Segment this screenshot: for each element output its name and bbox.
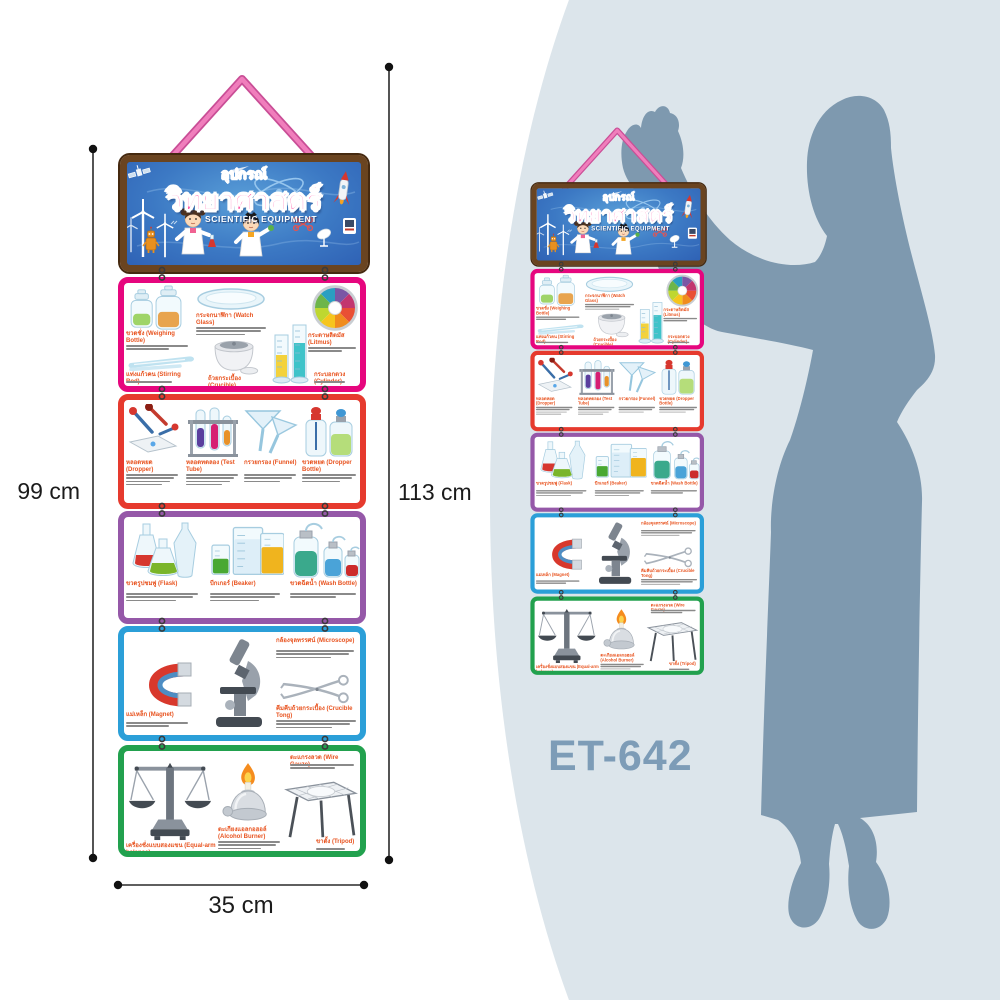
equal-arm-balance-art: [537, 604, 596, 664]
item-description: [308, 347, 356, 354]
chart-header-board: อุปกรณ์ วิทยาศาสตร์ SCIENTIFIC EQUIPMENT: [120, 155, 368, 272]
product-code: ET-642: [548, 732, 693, 781]
stirring-rod-art: [128, 355, 196, 371]
panel-3-flasks: ขวดรูปชมพู่ (Flask) บีกเกอร์ (Beaker): [118, 511, 366, 624]
item-description: [126, 852, 230, 855]
item-label: หลอดหยด (Dropper): [126, 460, 180, 473]
flask-art: [536, 440, 589, 481]
litmus-art: [666, 275, 698, 307]
magnet-art: [537, 536, 582, 572]
item-description: [126, 381, 192, 384]
item-description: [316, 848, 358, 851]
test-tube-art: [186, 404, 240, 460]
cylinder-art: [638, 301, 665, 344]
hook-icon: [320, 502, 330, 518]
flask-art: [126, 521, 202, 579]
item-label: บีกเกอร์ (Beaker): [595, 482, 647, 487]
panel-2-droppers: หลอดหยด (Dropper) หลอดทดลอง (Test Tube): [118, 394, 366, 509]
item-description: [536, 317, 579, 322]
crucible-art: [208, 339, 260, 375]
item-label: ตะเกียงแอลกอฮอล์ (Alcohol Burner): [218, 827, 284, 840]
hook-icon: [558, 507, 565, 518]
item-label: คีมคีบถ้วยกระเบื้อง (Crucible Tong): [276, 706, 360, 719]
item-description: [600, 664, 643, 671]
hook-icon: [320, 266, 330, 282]
item-description: [218, 841, 280, 851]
dimension-total-height: 113 cm: [398, 479, 472, 506]
hook-icon: [157, 617, 167, 633]
hook-icon: [320, 735, 330, 751]
item-label: ขวดชั่ง (Weighing Bottle): [536, 307, 581, 316]
equal-arm-balance-art: [128, 755, 212, 841]
crucible-art: [593, 312, 629, 337]
item-description: [659, 407, 697, 414]
item-label: ขวดรูปชมพู่ (Flask): [536, 482, 589, 487]
dropper-bottle-art: [302, 404, 356, 460]
funnel-art: [619, 358, 657, 396]
hook-icon: [558, 261, 565, 272]
item-description: [244, 474, 296, 484]
microscope-art: [593, 520, 636, 586]
stirring-rod-art: [537, 324, 585, 335]
item-label: กรวยกรอง (Funnel): [244, 460, 298, 467]
crucible-tong-art: [280, 674, 358, 704]
cylinder-art: [272, 323, 310, 385]
item-label: กล้องจุลทรรศน์ (Microscope): [276, 638, 358, 645]
chart-header-board: อุปกรณ์ วิทยาศาสตร์ SCIENTIFIC EQUIPMENT: [532, 184, 706, 266]
beaker-art: [595, 440, 647, 481]
hook-icon: [558, 345, 565, 356]
item-description: [669, 669, 698, 671]
item-label: ถ้วยกระเบื้อง (Crucible): [208, 376, 262, 389]
item-label: ขวดรูปชมพู่ (Flask): [126, 581, 202, 588]
dimension-board-height: 99 cm: [8, 478, 80, 505]
hook-icon: [672, 261, 679, 272]
panel-5-balance-heating: เครื่องชั่งแบบสองแขน (Equal-arm balance)…: [530, 597, 704, 675]
product-image: อุปกรณ์ วิทยาศาสตร์ SCIENTIFIC EQUIPMENT…: [0, 0, 1000, 1000]
hook-icon: [672, 590, 679, 601]
item-description: [314, 381, 358, 384]
item-label: คีมคีบถ้วยกระเบื้อง (Crucible Tong): [641, 569, 700, 578]
item-description: [126, 474, 178, 487]
microscope-art: [208, 636, 270, 730]
item-label: ถ้วยกระเบื้อง (Crucible): [593, 338, 631, 347]
chart-subtitle-en: SCIENTIFIC EQUIPMENT: [205, 214, 317, 224]
item-label: กระดาษลิตมัส (Litmus): [663, 308, 698, 317]
item-description: [619, 407, 655, 414]
item-label: บีกเกอร์ (Beaker): [210, 581, 284, 588]
item-description: [651, 610, 696, 615]
dimension-width: 35 cm: [181, 892, 301, 920]
item-description: [585, 304, 634, 311]
hook-icon: [320, 385, 330, 401]
item-description: [290, 593, 356, 600]
panel-4-magnet-microscope: แม่เหล็ก (Magnet) กล้องจุลทรรศน์ (Micros…: [530, 513, 704, 594]
panel-5-balance-heating: เครื่องชั่งแบบสองแขน (Equal-arm balance)…: [118, 745, 366, 857]
hook-icon: [558, 426, 565, 437]
hook-icon: [672, 507, 679, 518]
funnel-art: [244, 404, 298, 458]
chart-subtitle-en: SCIENTIFIC EQUIPMENT: [591, 225, 669, 232]
item-label: ตะเกียงแอลกอฮอล์ (Alcohol Burner): [600, 654, 646, 663]
item-label: หลอดทดลอง (Test Tube): [186, 460, 240, 473]
item-label: กระจกนาฬิกา (Watch Glass): [585, 294, 635, 303]
litmus-art: [312, 285, 358, 331]
weighing-bottle-art: [128, 285, 186, 331]
robot-icon: [548, 234, 559, 252]
panel-2-droppers: หลอดหยด (Dropper) หลอดทดลอง (Test Tube): [530, 351, 704, 432]
wash-bottle-art: [290, 521, 360, 579]
item-description: [290, 764, 354, 771]
item-label: ขวดชั่ง (Weighing Bottle): [126, 331, 190, 344]
hook-icon: [558, 590, 565, 601]
test-tube-art: [578, 358, 616, 397]
item-label: ขาตั้ง (Tripod): [669, 662, 700, 667]
magnet-art: [128, 658, 192, 710]
item-description: [196, 327, 266, 337]
dropper-bottle-art: [659, 358, 697, 397]
item-description: [663, 318, 697, 323]
item-label: หลอดทดลอง (Test Tube): [578, 397, 616, 406]
dropper-art: [536, 358, 574, 396]
robot-icon: [143, 227, 159, 253]
hook-icon: [157, 266, 167, 282]
item-label: กระดาษลิตมัส (Litmus): [308, 333, 358, 346]
item-description: [641, 530, 696, 537]
dropper-art: [126, 404, 180, 458]
hook-icon: [157, 385, 167, 401]
item-description: [578, 407, 614, 416]
wash-bottle-art: [651, 440, 700, 481]
item-description: [210, 593, 280, 603]
panel-4-magnet-microscope: แม่เหล็ก (Magnet) กล้องจุลทรรศน์ (Micros…: [118, 626, 366, 741]
item-label: ขาตั้ง (Tripod): [316, 839, 360, 846]
item-label: ขวดหยด (Dropper Bottle): [302, 460, 358, 473]
item-label: ขวดฉีดน้ำ (Wash Bottle): [290, 581, 360, 588]
item-description: [186, 474, 238, 487]
item-description: [276, 720, 356, 730]
item-label: แม่เหล็ก (Magnet): [126, 712, 190, 719]
item-label: หลอดหยด (Dropper): [536, 397, 574, 406]
item-label: กล้องจุลทรรศน์ (Microscope): [641, 522, 698, 527]
watch-glass-art: [585, 276, 634, 293]
panel-1-glassware: ขวดชั่ง (Weighing Bottle) กระจกนาฬิกา (W…: [530, 269, 704, 350]
hook-icon: [157, 502, 167, 518]
item-description: [536, 490, 586, 497]
tripod-wire-gauze-art: [645, 618, 700, 663]
item-description: [126, 345, 188, 352]
item-description: [651, 490, 697, 495]
item-label: ขวดฉีดน้ำ (Wash Bottle): [651, 482, 700, 487]
alcohol-burner-art: [603, 608, 639, 653]
item-description: [126, 722, 188, 729]
item-label: ขวดหยด (Dropper Bottle): [659, 397, 698, 406]
hook-icon: [672, 345, 679, 356]
hook-icon: [320, 617, 330, 633]
wall-chart-small: อุปกรณ์ วิทยาศาสตร์ SCIENTIFIC EQUIPMENT…: [529, 124, 705, 678]
hook-icon: [157, 735, 167, 751]
hook-icon: [672, 426, 679, 437]
item-description: [276, 650, 354, 660]
item-label: กรวยกรอง (Funnel): [619, 397, 657, 402]
panel-1-glassware: ขวดชั่ง (Weighing Bottle) กระจกนาฬิกา (W…: [118, 277, 366, 392]
wall-chart: อุปกรณ์ วิทยาศาสตร์ SCIENTIFIC EQUIPMENT…: [116, 70, 368, 862]
item-description: [536, 407, 572, 416]
alcohol-burner-art: [222, 761, 274, 825]
item-description: [536, 580, 579, 585]
item-description: [126, 593, 198, 603]
crucible-tong-art: [644, 547, 699, 568]
weighing-bottle-art: [537, 275, 578, 307]
beaker-art: [210, 521, 284, 579]
item-label: แม่เหล็ก (Magnet): [536, 573, 581, 578]
item-description: [536, 671, 609, 673]
tripod-wire-gauze-art: [282, 775, 360, 839]
watch-glass-art: [196, 287, 266, 311]
item-description: [595, 490, 644, 497]
item-label: กระจกนาฬิกา (Watch Glass): [196, 313, 268, 326]
item-description: [302, 474, 356, 484]
item-description: [641, 579, 697, 586]
panel-3-flasks: ขวดรูปชมพู่ (Flask) บีกเกอร์ (Beaker): [530, 433, 704, 512]
